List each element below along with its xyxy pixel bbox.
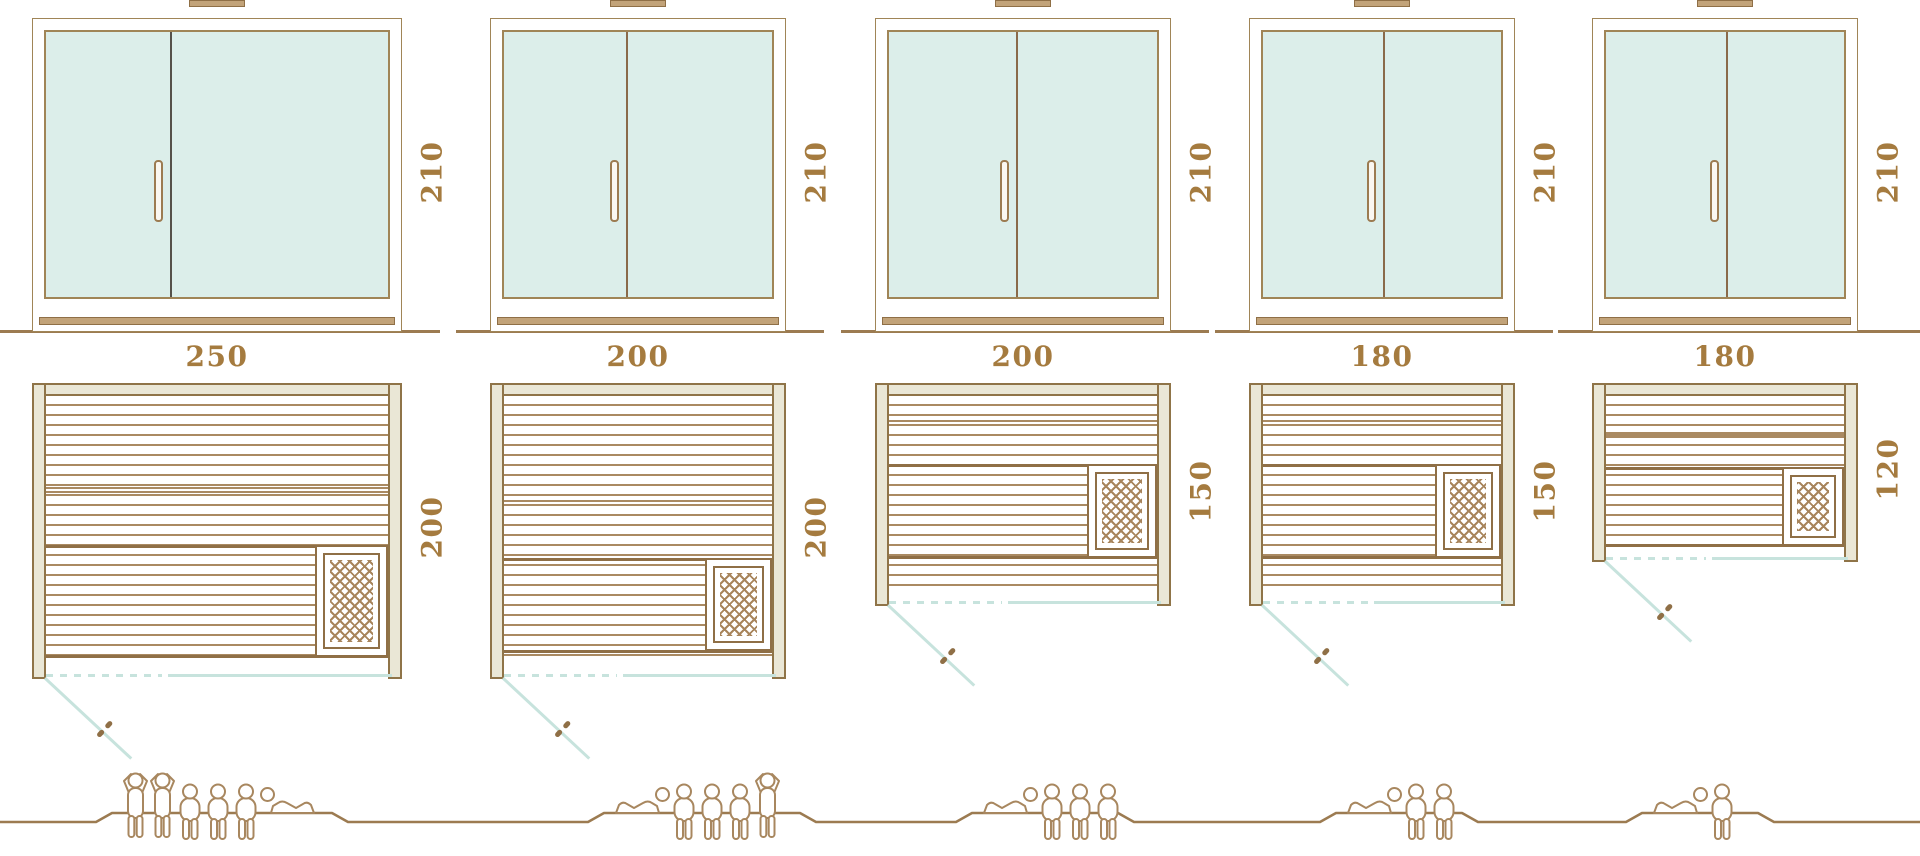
handle-segment — [939, 655, 948, 664]
door-handle-icon — [1000, 160, 1009, 222]
plan-right-post — [1157, 383, 1171, 606]
unit-sauna-180x150: 210180150 — [1249, 0, 1515, 856]
height-dimension-label: 210 — [1529, 141, 1562, 204]
door-handle-icon — [1710, 160, 1719, 222]
roof-vent-icon — [189, 0, 245, 7]
heater-platform — [705, 558, 772, 651]
heater-mesh — [1450, 479, 1486, 543]
width-dimension-label: 180 — [1249, 340, 1515, 373]
person-seated-icon — [209, 785, 228, 840]
width-dimension-label: 250 — [32, 340, 402, 373]
door-swing-icon — [44, 677, 132, 759]
width-dimension-label: 200 — [875, 340, 1171, 373]
person-seated-icon — [181, 785, 200, 840]
glass-doors — [1261, 30, 1503, 299]
heater-platform — [1435, 464, 1501, 558]
roof-vent-icon — [1697, 0, 1753, 7]
plan-left-post — [1249, 383, 1263, 606]
door-handle-icon — [154, 160, 163, 222]
heater-icon — [1443, 472, 1493, 550]
heater-icon — [1095, 472, 1149, 550]
roof-vent-icon — [610, 0, 666, 7]
depth-dimension-label: 200 — [416, 496, 449, 559]
person-standing-icon — [756, 774, 779, 838]
height-dimension-label: 210 — [1872, 141, 1905, 204]
height-dimension-label: 210 — [416, 141, 449, 204]
plan-top-wall — [32, 383, 402, 396]
person-seated-icon — [703, 785, 722, 840]
front-elevation — [1592, 18, 1858, 332]
depth-dimension-label: 150 — [1529, 459, 1562, 522]
plan-left-post — [32, 383, 46, 679]
person-seated-icon — [731, 785, 750, 840]
heater-icon — [1790, 475, 1836, 538]
person-seated-icon — [1435, 785, 1454, 840]
capacity-strip — [0, 770, 1920, 856]
fixed-glass-line — [168, 674, 392, 677]
door-sill — [39, 317, 395, 325]
door-handle-icon — [610, 160, 619, 222]
floor-plan — [32, 383, 402, 675]
fixed-glass-line — [623, 674, 776, 677]
stepped-ground-line — [0, 813, 1920, 822]
glass-doors — [44, 30, 390, 299]
heater-mesh — [330, 560, 373, 642]
roof-vent-icon — [995, 0, 1051, 7]
plan-right-post — [1501, 383, 1515, 606]
floor-plan — [490, 383, 786, 675]
door-opening-line — [1606, 557, 1706, 560]
bench-line — [1606, 432, 1844, 434]
door-swing-icon — [887, 604, 975, 686]
sauna-dimension-diagram: 2102502002102002002102001502101801502101… — [0, 0, 1920, 856]
person-standing-icon — [151, 774, 174, 838]
fixed-glass-line — [1374, 601, 1505, 604]
person-seated-icon — [675, 785, 694, 840]
plan-right-post — [772, 383, 786, 679]
door-swing-icon — [1261, 604, 1349, 686]
person-seated-icon — [1099, 785, 1118, 840]
door-opening-line — [504, 674, 617, 677]
glass-doors — [887, 30, 1159, 299]
handle-segment — [947, 647, 956, 656]
door-swing-icon — [502, 677, 590, 759]
plan-top-wall — [1592, 383, 1858, 396]
door-sill — [882, 317, 1164, 325]
bench-line — [46, 487, 388, 489]
handle-segment — [562, 720, 571, 729]
door-handle-icon — [1367, 160, 1376, 222]
person-seated-icon — [1043, 785, 1062, 840]
width-dimension-label: 200 — [490, 340, 786, 373]
person-seated-icon — [237, 785, 256, 840]
person-lying-icon — [1348, 788, 1401, 813]
unit-sauna-200x200: 210200200 — [490, 0, 786, 856]
front-elevation — [875, 18, 1171, 332]
depth-dimension-label: 120 — [1872, 437, 1905, 500]
person-lying-icon — [984, 788, 1037, 813]
plan-top-wall — [875, 383, 1171, 396]
glass-doors — [1604, 30, 1846, 299]
heater-platform — [1782, 467, 1844, 546]
door-leaf-divider — [1383, 32, 1385, 297]
handle-segment — [96, 728, 105, 737]
capacity-group-5-persons — [616, 774, 779, 840]
plan-top-wall — [1249, 383, 1515, 396]
heater-platform — [315, 545, 388, 657]
plan-left-post — [490, 383, 504, 679]
door-swing-icon — [1604, 560, 1692, 642]
person-lying-icon — [1654, 788, 1707, 813]
person-lying-icon — [261, 788, 314, 813]
door-sill — [1256, 317, 1508, 325]
unit-sauna-180x120: 210180120 — [1592, 0, 1858, 856]
door-leaf-divider — [626, 32, 628, 297]
front-elevation — [490, 18, 786, 332]
heater-icon — [713, 566, 764, 643]
door-sill — [1599, 317, 1851, 325]
capacity-group-6-persons — [124, 774, 314, 840]
plan-left-post — [1592, 383, 1606, 562]
heater-mesh — [720, 573, 757, 636]
floor-plan — [1249, 383, 1515, 602]
handle-segment — [1321, 647, 1330, 656]
door-leaf-divider — [1726, 32, 1728, 297]
depth-dimension-label: 150 — [1185, 459, 1218, 522]
heater-mesh — [1102, 479, 1142, 543]
door-opening-line — [889, 601, 1002, 604]
roof-vent-icon — [1354, 0, 1410, 7]
unit-sauna-250x200: 210250200 — [32, 0, 402, 856]
plan-right-post — [1844, 383, 1858, 562]
plan-left-post — [875, 383, 889, 606]
handle-segment — [1664, 603, 1673, 612]
capacity-group-2-persons — [1654, 785, 1732, 840]
door-sill — [497, 317, 779, 325]
door-leaf-divider — [1016, 32, 1018, 297]
glass-doors — [502, 30, 774, 299]
fixed-glass-line — [1008, 601, 1161, 604]
door-leaf-divider — [170, 32, 172, 297]
front-elevation — [32, 18, 402, 332]
plan-right-post — [388, 383, 402, 679]
floor-plan — [875, 383, 1171, 602]
person-standing-icon — [124, 774, 147, 838]
handle-segment — [104, 720, 113, 729]
handle-segment — [554, 728, 563, 737]
capacity-figures-svg — [0, 770, 1920, 856]
depth-dimension-label: 200 — [800, 496, 833, 559]
handle-segment — [1313, 655, 1322, 664]
person-lying-icon — [616, 788, 669, 813]
door-opening-line — [46, 674, 162, 677]
height-dimension-label: 210 — [1185, 141, 1218, 204]
fixed-glass-line — [1712, 557, 1848, 560]
bench-line — [889, 420, 1157, 422]
heater-platform — [1087, 464, 1157, 558]
width-dimension-label: 180 — [1592, 340, 1858, 373]
unit-sauna-200x150: 210200150 — [875, 0, 1171, 856]
heater-mesh — [1797, 482, 1829, 531]
person-seated-icon — [1071, 785, 1090, 840]
person-seated-icon — [1407, 785, 1426, 840]
floor-plan — [1592, 383, 1858, 558]
bench-line — [504, 500, 772, 502]
front-elevation — [1249, 18, 1515, 332]
plan-top-wall — [490, 383, 786, 396]
bench-line — [1263, 420, 1501, 422]
heater-icon — [323, 553, 380, 649]
height-dimension-label: 210 — [800, 141, 833, 204]
door-opening-line — [1263, 601, 1368, 604]
handle-segment — [1656, 611, 1665, 620]
person-seated-icon — [1713, 785, 1732, 840]
